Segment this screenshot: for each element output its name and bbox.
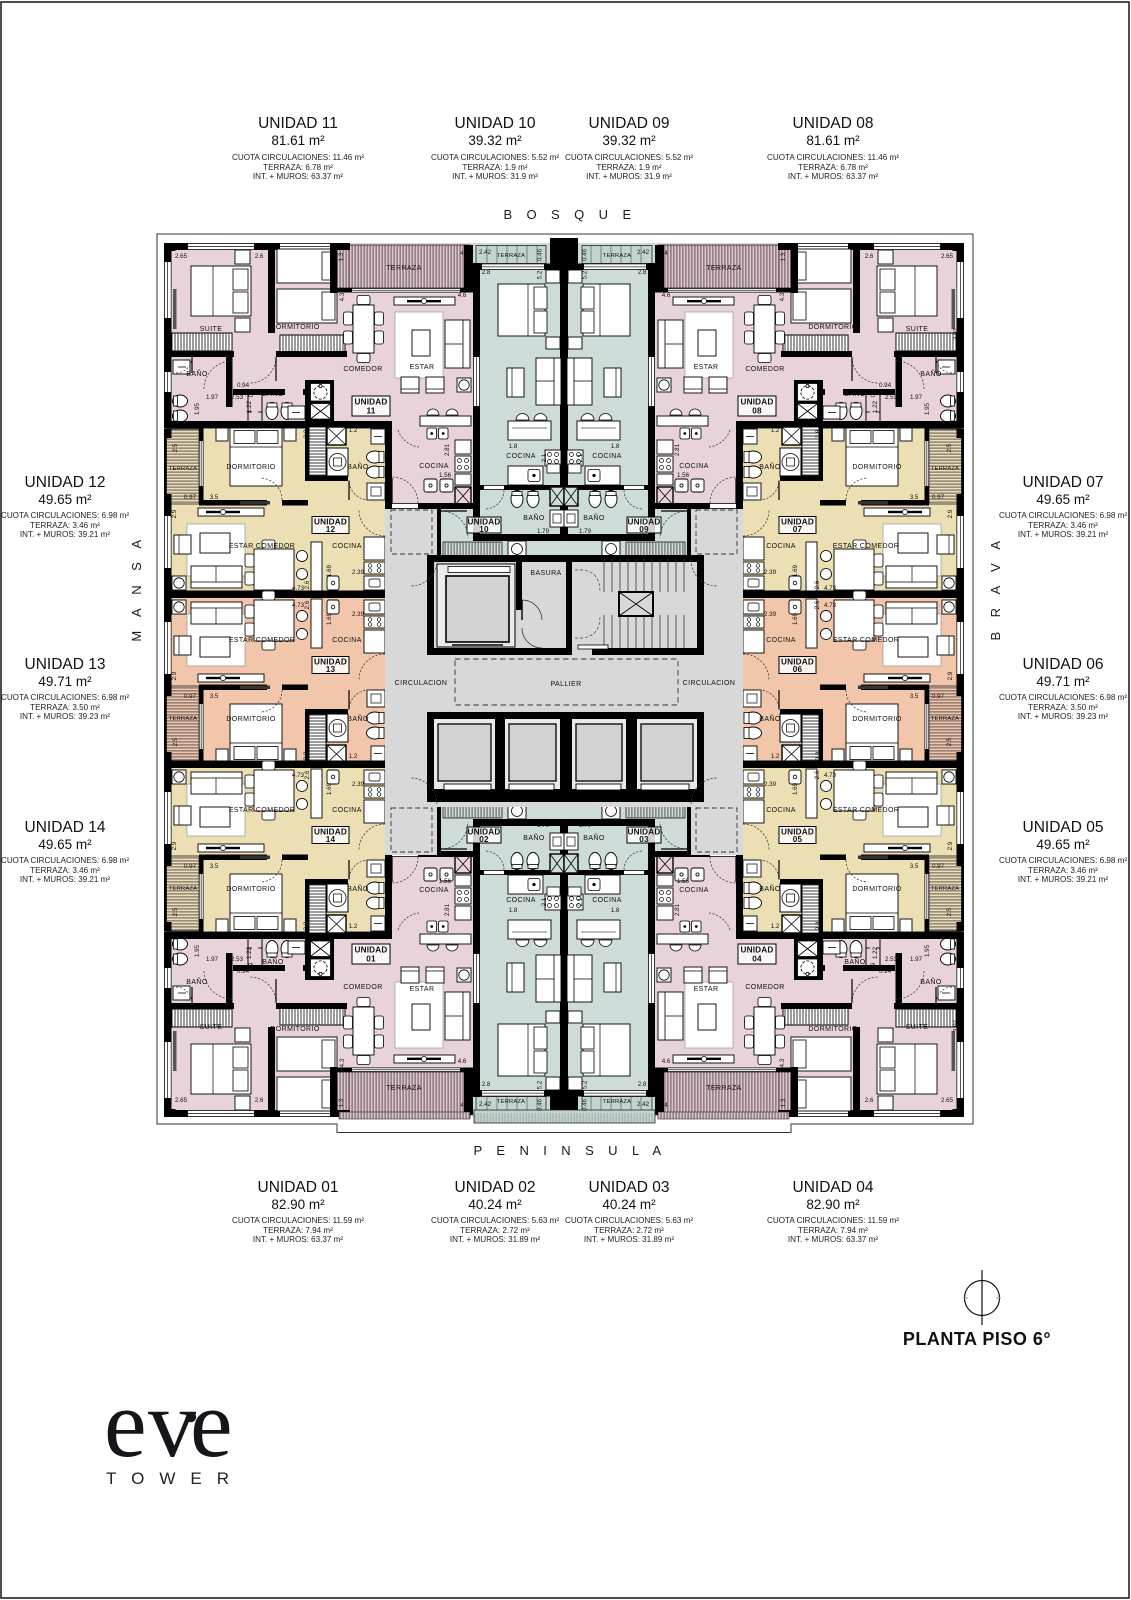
svg-text:1.97: 1.97 [206,394,219,401]
svg-text:2.39: 2.39 [352,781,365,788]
svg-text:07: 07 [793,525,803,534]
svg-text:2.6: 2.6 [865,1097,874,1104]
svg-text:INT. + MUROS: 31.9 m²: INT. + MUROS: 31.9 m² [452,172,538,181]
svg-text:COMEDOR: COMEDOR [343,366,382,373]
svg-text:1.3: 1.3 [780,252,787,261]
svg-text:TERRAZA: TERRAZA [497,253,525,259]
svg-text:5.2: 5.2 [582,1080,589,1089]
svg-text:COMEDOR: COMEDOR [343,984,382,991]
svg-text:13: 13 [326,665,336,674]
svg-text:3.07: 3.07 [166,327,173,340]
svg-text:DORMITORIO: DORMITORIO [226,886,276,893]
svg-text:BAÑO: BAÑO [920,369,942,378]
svg-text:UNIDAD 11: UNIDAD 11 [258,115,338,132]
svg-text:TERRAZA: TERRAZA [169,716,197,722]
svg-text:1.2: 1.2 [349,753,358,760]
svg-text:e: e [190,1370,231,1477]
svg-text:2.8: 2.8 [638,269,647,276]
svg-text:4.73: 4.73 [292,602,305,609]
svg-text:BAÑO: BAÑO [347,884,369,893]
svg-text:0.97: 0.97 [184,494,197,501]
svg-text:CUOTA CIRCULACIONES: 5.52 m²: CUOTA CIRCULACIONES: 5.52 m² [565,153,693,162]
svg-text:SUITE: SUITE [906,1024,929,1031]
svg-text:40.24 m²: 40.24 m² [468,1197,522,1212]
svg-text:COCINA: COCINA [592,453,622,460]
svg-text:2.5: 2.5 [172,907,179,916]
svg-text:82.90 m²: 82.90 m² [806,1197,860,1212]
svg-text:ESTAR: ESTAR [410,986,435,993]
svg-text:3.5: 3.5 [210,494,219,501]
svg-text:2.6: 2.6 [814,600,821,609]
svg-text:COMEDOR: COMEDOR [745,366,784,373]
svg-text:49.65 m²: 49.65 m² [38,492,92,507]
svg-text:BAÑO: BAÑO [583,833,605,842]
svg-text:3.07: 3.07 [953,327,960,340]
svg-text:1.22: 1.22 [246,946,253,959]
svg-text:TERRAZA: TERRAZA [931,716,959,722]
svg-text:BAÑO: BAÑO [920,977,942,986]
svg-text:COCINA: COCINA [592,897,622,904]
svg-text:TERRAZA: 3.50 m²: TERRAZA: 3.50 m² [1028,703,1098,712]
svg-text:2.8: 2.8 [638,1081,647,1088]
svg-text:1.8: 1.8 [509,907,518,914]
svg-text:1.56: 1.56 [439,472,452,479]
svg-text:COCINA: COCINA [679,463,709,470]
svg-text:2.81: 2.81 [444,903,451,916]
svg-text:ESTAR: ESTAR [694,986,719,993]
svg-text:DORMITORIO: DORMITORIO [226,716,276,723]
svg-text:TERRAZA: TERRAZA [386,1085,421,1092]
svg-text:TERRAZA: TERRAZA [603,253,631,259]
svg-text:1.95: 1.95 [194,944,201,957]
svg-text:2.42: 2.42 [479,249,492,256]
svg-text:DORMITORIO: DORMITORIO [808,1026,858,1033]
svg-text:0.9: 0.9 [870,962,877,971]
svg-text:2.42: 2.42 [637,1101,650,1108]
svg-text:TERRAZA: 7.94 m²: TERRAZA: 7.94 m² [263,1226,333,1235]
svg-text:2.8: 2.8 [482,1081,491,1088]
svg-text:39.32 m²: 39.32 m² [468,133,522,148]
svg-text:ESTAR: ESTAR [694,364,719,371]
svg-text:INT. + MUROS: 31.89 m²: INT. + MUROS: 31.89 m² [584,1235,674,1244]
svg-text:DORMITORIO: DORMITORIO [226,464,276,471]
svg-text:81.61 m²: 81.61 m² [271,133,325,148]
svg-text:TERRAZA: 6.78 m²: TERRAZA: 6.78 m² [263,163,333,172]
svg-text:SUITE: SUITE [200,1024,223,1031]
svg-text:CUOTA CIRCULACIONES: 6.98 m²: CUOTA CIRCULACIONES: 6.98 m² [999,856,1127,865]
svg-text:1.3: 1.3 [338,252,345,261]
svg-text:1.22: 1.22 [872,946,879,959]
svg-text:DORMITORIO: DORMITORIO [270,324,320,331]
svg-text:49.71 m²: 49.71 m² [38,674,92,689]
svg-text:2.65: 2.65 [941,1097,954,1104]
svg-text:TERRAZA: 3.46 m²: TERRAZA: 3.46 m² [1028,521,1098,530]
svg-text:TERRAZA: TERRAZA [603,1099,631,1105]
svg-text:1.2: 1.2 [349,427,358,434]
svg-text:1.56: 1.56 [439,878,452,885]
svg-text:e: e [104,1370,145,1477]
svg-text:PLANTA PISO 6°: PLANTA PISO 6° [903,1329,1051,1349]
svg-text:BAÑO: BAÑO [262,957,284,966]
svg-text:2.39: 2.39 [764,611,777,618]
svg-text:TERRAZA: TERRAZA [169,466,197,472]
svg-text:BAÑO: BAÑO [523,513,545,522]
svg-text:4.3: 4.3 [779,1058,786,1067]
svg-text:1.79: 1.79 [579,528,592,535]
svg-text:0.97: 0.97 [932,693,945,700]
svg-text:1.22: 1.22 [246,400,253,413]
svg-text:TERRAZA: 1.9 m²: TERRAZA: 1.9 m² [596,163,662,172]
svg-text:COCINA: COCINA [419,887,449,894]
svg-text:DORMITORIO: DORMITORIO [852,886,902,893]
svg-text:B R A V A: B R A V A [988,536,1003,641]
svg-text:2.42: 2.42 [637,249,650,256]
svg-text:INT. + MUROS: 39.23 m²: INT. + MUROS: 39.23 m² [20,712,110,721]
svg-text:05: 05 [793,835,803,844]
svg-text:2.8: 2.8 [815,429,822,438]
svg-text:CUOTA CIRCULACIONES: 6.98 m²: CUOTA CIRCULACIONES: 6.98 m² [1,511,129,520]
svg-text:2.9: 2.9 [947,841,954,850]
svg-text:4: 4 [460,250,464,257]
svg-text:39.32 m²: 39.32 m² [602,133,656,148]
svg-text:82.90 m²: 82.90 m² [271,1197,325,1212]
svg-text:CUOTA CIRCULACIONES: 6.98 m²: CUOTA CIRCULACIONES: 6.98 m² [999,511,1127,520]
svg-text:2.65: 2.65 [175,253,188,260]
svg-text:1.95: 1.95 [194,402,201,415]
svg-text:TERRAZA: TERRAZA [169,886,197,892]
svg-text:INT. + MUROS: 63.37 m²: INT. + MUROS: 63.37 m² [788,1235,878,1244]
svg-text:TERRAZA: 1.9 m²: TERRAZA: 1.9 m² [462,163,528,172]
svg-text:PALLIER: PALLIER [550,681,581,688]
svg-text:TERRAZA: TERRAZA [931,886,959,892]
svg-text:CUOTA CIRCULACIONES: 5.63 m²: CUOTA CIRCULACIONES: 5.63 m² [431,1216,559,1225]
svg-text:3.5: 3.5 [910,494,919,501]
svg-text:TOWER: TOWER [106,1469,244,1488]
svg-text:2.65: 2.65 [175,1097,188,1104]
svg-text:49.65 m²: 49.65 m² [38,837,92,852]
svg-text:B O S Q U E: B O S Q U E [503,207,636,222]
svg-text:49.65 m²: 49.65 m² [1036,837,1090,852]
svg-text:2.1: 2.1 [577,453,584,462]
svg-text:1.56: 1.56 [677,878,690,885]
svg-text:ESTAR COMEDOR: ESTAR COMEDOR [229,807,296,814]
svg-text:BAÑO: BAÑO [186,369,208,378]
svg-text:2.81: 2.81 [674,443,681,456]
svg-text:2.5: 2.5 [172,737,179,746]
svg-text:03: 03 [639,835,649,844]
svg-text:1.2: 1.2 [771,923,780,930]
svg-text:SUITE: SUITE [906,326,929,333]
svg-text:4.3: 4.3 [779,292,786,301]
svg-text:BAÑO: BAÑO [583,513,605,522]
svg-text:1.95: 1.95 [924,402,931,415]
svg-text:4.3: 4.3 [339,1058,346,1067]
svg-text:49.71 m²: 49.71 m² [1036,674,1090,689]
svg-text:0.94: 0.94 [237,382,250,389]
svg-text:1.8: 1.8 [509,443,518,450]
svg-text:ESTAR COMEDOR: ESTAR COMEDOR [833,807,900,814]
svg-text:1.8: 1.8 [611,907,620,914]
svg-text:02: 02 [479,835,489,844]
svg-text:1.2: 1.2 [771,753,780,760]
svg-text:2.6: 2.6 [304,770,311,779]
svg-text:BAÑO: BAÑO [759,462,781,471]
svg-text:BAÑO: BAÑO [759,884,781,893]
svg-text:UNIDAD 12: UNIDAD 12 [25,474,106,491]
svg-text:2.39: 2.39 [764,781,777,788]
svg-text:09: 09 [639,525,649,534]
svg-text:CIRCULACION: CIRCULACION [683,680,736,687]
svg-text:4.6: 4.6 [662,1058,671,1065]
svg-text:BAÑO: BAÑO [523,833,545,842]
svg-text:12: 12 [326,525,336,534]
svg-text:1.95: 1.95 [924,944,931,957]
svg-text:2.1: 2.1 [541,897,548,906]
svg-text:CUOTA CIRCULACIONES: 11.46 m²: CUOTA CIRCULACIONES: 11.46 m² [767,153,899,162]
svg-text:4: 4 [460,1102,464,1109]
svg-text:CUOTA CIRCULACIONES: 6.98 m²: CUOTA CIRCULACIONES: 6.98 m² [999,693,1127,702]
svg-text:2.6: 2.6 [304,580,311,589]
svg-text:INT. + MUROS: 63.37 m²: INT. + MUROS: 63.37 m² [253,172,343,181]
svg-text:08: 08 [752,407,762,416]
svg-text:2.8: 2.8 [303,751,310,760]
svg-text:COCINA: COCINA [766,807,796,814]
svg-text:BAÑO: BAÑO [759,714,781,723]
svg-text:5.2: 5.2 [582,270,589,279]
svg-text:UNIDAD 02: UNIDAD 02 [455,1179,536,1196]
svg-text:4.6: 4.6 [458,292,467,299]
svg-text:INT. + MUROS: 39.21 m²: INT. + MUROS: 39.21 m² [20,875,110,884]
svg-text:SUITE: SUITE [200,326,223,333]
svg-text:1.79: 1.79 [579,822,592,829]
svg-text:2.8: 2.8 [482,269,491,276]
svg-text:TERRAZA: 3.50 m²: TERRAZA: 3.50 m² [30,703,100,712]
svg-text:COCINA: COCINA [419,463,449,470]
svg-text:DORMITORIO: DORMITORIO [852,716,902,723]
svg-text:3.07: 3.07 [953,1019,960,1032]
svg-text:TERRAZA: TERRAZA [931,466,959,472]
svg-text:TERRAZA: 7.94 m²: TERRAZA: 7.94 m² [798,1226,868,1235]
svg-text:UNIDAD: UNIDAD [740,946,773,955]
svg-text:CUOTA CIRCULACIONES: 11.59 m²: CUOTA CIRCULACIONES: 11.59 m² [767,1216,899,1225]
svg-text:ESTAR COMEDOR: ESTAR COMEDOR [833,637,900,644]
svg-text:UNIDAD 06: UNIDAD 06 [1023,656,1104,673]
svg-text:1.2: 1.2 [349,923,358,930]
svg-text:0.94: 0.94 [879,968,892,975]
svg-text:2.6: 2.6 [865,253,874,260]
svg-text:1.97: 1.97 [206,956,219,963]
svg-text:INT. + MUROS: 63.37 m²: INT. + MUROS: 63.37 m² [788,172,878,181]
svg-text:2.9: 2.9 [947,671,954,680]
svg-text:2.5: 2.5 [946,737,953,746]
svg-text:0.97: 0.97 [184,863,197,870]
svg-text:CIRCULACION: CIRCULACION [395,680,448,687]
svg-text:1.3: 1.3 [338,1098,345,1107]
svg-text:BAÑO: BAÑO [844,389,866,398]
svg-text:INT. + MUROS: 39.21 m²: INT. + MUROS: 39.21 m² [20,530,110,539]
svg-text:1.97: 1.97 [910,394,923,401]
svg-text:TERRAZA: 2.72 m²: TERRAZA: 2.72 m² [594,1226,664,1235]
svg-text:BASURA: BASURA [530,570,561,577]
svg-text:BAÑO: BAÑO [347,462,369,471]
svg-text:INT. + MUROS: 39.21 m²: INT. + MUROS: 39.21 m² [1018,530,1108,539]
svg-text:0.9: 0.9 [248,962,255,971]
svg-text:COCINA: COCINA [506,453,536,460]
svg-text:BAÑO: BAÑO [262,389,284,398]
svg-text:2.81: 2.81 [444,443,451,456]
svg-text:0.46: 0.46 [582,248,589,261]
svg-text:2.39: 2.39 [352,569,365,576]
svg-text:COCINA: COCINA [332,807,362,814]
svg-text:BAÑO: BAÑO [186,977,208,986]
svg-text:0.46: 0.46 [582,1098,589,1111]
svg-text:UNIDAD 01: UNIDAD 01 [258,1179,339,1196]
svg-text:UNIDAD 04: UNIDAD 04 [793,1179,874,1196]
svg-text:INT. + MUROS: 31.9 m²: INT. + MUROS: 31.9 m² [586,172,672,181]
svg-text:UNIDAD 07: UNIDAD 07 [1023,474,1104,491]
svg-text:4.73: 4.73 [292,585,305,592]
svg-text:0.97: 0.97 [184,693,197,700]
svg-text:CUOTA CIRCULACIONES: 11.59 m²: CUOTA CIRCULACIONES: 11.59 m² [232,1216,364,1225]
svg-text:2.5: 2.5 [946,907,953,916]
svg-text:1.97: 1.97 [910,956,923,963]
svg-text:81.61 m²: 81.61 m² [806,133,860,148]
svg-text:M A N S A: M A N S A [129,534,144,641]
svg-text:4.73: 4.73 [292,772,305,779]
svg-text:1.3: 1.3 [780,1098,787,1107]
svg-text:2.6: 2.6 [814,580,821,589]
svg-text:1.69: 1.69 [792,612,799,625]
svg-text:COCINA: COCINA [766,543,796,550]
svg-text:2.5: 2.5 [172,443,179,452]
svg-text:2.6: 2.6 [255,1097,264,1104]
svg-text:0.9: 0.9 [248,388,255,397]
svg-text:2.9: 2.9 [171,841,178,850]
svg-text:COMEDOR: COMEDOR [745,984,784,991]
svg-text:3.5: 3.5 [210,863,219,870]
svg-text:2.6: 2.6 [304,600,311,609]
svg-text:06: 06 [793,665,803,674]
svg-text:BAÑO: BAÑO [844,957,866,966]
svg-text:2.6: 2.6 [255,253,264,260]
svg-text:1.2: 1.2 [771,427,780,434]
svg-text:0.94: 0.94 [879,382,892,389]
svg-text:UNIDAD: UNIDAD [354,398,387,407]
svg-text:1.69: 1.69 [326,564,333,577]
svg-text:TERRAZA: 2.72 m²: TERRAZA: 2.72 m² [460,1226,530,1235]
svg-text:BAÑO: BAÑO [347,714,369,723]
svg-text:UNIDAD: UNIDAD [740,398,773,407]
svg-text:2.53: 2.53 [231,956,244,963]
svg-text:4.73: 4.73 [824,585,837,592]
svg-text:2.53: 2.53 [885,956,898,963]
svg-text:0.9: 0.9 [870,388,877,397]
svg-text:UNIDAD 13: UNIDAD 13 [25,656,106,673]
svg-text:2.8: 2.8 [303,921,310,930]
svg-text:CUOTA CIRCULACIONES: 11.46 m²: CUOTA CIRCULACIONES: 11.46 m² [232,153,364,162]
svg-text:1.79: 1.79 [537,528,550,535]
svg-text:4.73: 4.73 [824,602,837,609]
svg-text:0.46: 0.46 [537,248,544,261]
svg-text:49.65 m²: 49.65 m² [1036,492,1090,507]
svg-text:INT. + MUROS: 39.23 m²: INT. + MUROS: 39.23 m² [1018,712,1108,721]
svg-text:2.53: 2.53 [231,394,244,401]
svg-text:UNIDAD 03: UNIDAD 03 [589,1179,670,1196]
svg-text:1.56: 1.56 [677,472,690,479]
svg-text:COCINA: COCINA [766,637,796,644]
svg-text:ESTAR COMEDOR: ESTAR COMEDOR [229,543,296,550]
svg-text:2.53: 2.53 [885,394,898,401]
svg-text:UNIDAD 09: UNIDAD 09 [589,115,670,132]
svg-text:2.9: 2.9 [171,671,178,680]
svg-text:2.1: 2.1 [541,453,548,462]
svg-text:1.69: 1.69 [326,612,333,625]
svg-text:4.6: 4.6 [458,1058,467,1065]
svg-text:TERRAZA: TERRAZA [706,265,741,272]
svg-text:1.8: 1.8 [611,443,620,450]
svg-text:2.8: 2.8 [303,429,310,438]
svg-text:1.69: 1.69 [792,564,799,577]
svg-text:TERRAZA: 3.46 m²: TERRAZA: 3.46 m² [1028,866,1098,875]
svg-text:UNIDAD: UNIDAD [354,946,387,955]
svg-text:4: 4 [664,1102,668,1109]
svg-text:5.2: 5.2 [537,270,544,279]
svg-text:2.81: 2.81 [674,903,681,916]
svg-text:2.39: 2.39 [764,569,777,576]
svg-text:40.24 m²: 40.24 m² [602,1197,656,1212]
svg-text:4.6: 4.6 [662,292,671,299]
svg-text:UNIDAD 08: UNIDAD 08 [793,115,874,132]
svg-text:ESTAR COMEDOR: ESTAR COMEDOR [833,543,900,550]
svg-text:2.42: 2.42 [479,1101,492,1108]
svg-text:COCINA: COCINA [332,637,362,644]
svg-text:1.22: 1.22 [872,400,879,413]
svg-text:CUOTA CIRCULACIONES: 6.98 m²: CUOTA CIRCULACIONES: 6.98 m² [1,856,129,865]
svg-text:INT. + MUROS: 63.37 m²: INT. + MUROS: 63.37 m² [253,1235,343,1244]
svg-text:INT. + MUROS: 31.89 m²: INT. + MUROS: 31.89 m² [450,1235,540,1244]
svg-text:CUOTA CIRCULACIONES: 6.98 m²: CUOTA CIRCULACIONES: 6.98 m² [1,693,129,702]
svg-text:2.8: 2.8 [815,751,822,760]
svg-text:INT. + MUROS: 39.21 m²: INT. + MUROS: 39.21 m² [1018,875,1108,884]
svg-text:TERRAZA: TERRAZA [386,265,421,272]
svg-text:14: 14 [326,835,336,844]
svg-text:0.46: 0.46 [537,1098,544,1111]
svg-text:11: 11 [366,407,375,416]
svg-text:4.3: 4.3 [339,292,346,301]
svg-text:TERRAZA: TERRAZA [497,1099,525,1105]
svg-text:1.69: 1.69 [792,782,799,795]
svg-text:COCINA: COCINA [332,543,362,550]
svg-text:v: v [148,1370,196,1477]
svg-text:DORMITORIO: DORMITORIO [852,464,902,471]
svg-text:ESTAR COMEDOR: ESTAR COMEDOR [229,637,296,644]
svg-text:UNIDAD 05: UNIDAD 05 [1023,819,1104,836]
svg-text:UNIDAD 14: UNIDAD 14 [25,819,106,836]
svg-text:TERRAZA: TERRAZA [706,1085,741,1092]
svg-text:0.97: 0.97 [932,863,945,870]
svg-text:2.9: 2.9 [171,509,178,518]
svg-text:2.9: 2.9 [947,509,954,518]
svg-text:P E N I N S U L A: P E N I N S U L A [474,1143,667,1158]
svg-text:3.5: 3.5 [210,693,219,700]
svg-text:DORMITORIO: DORMITORIO [808,324,858,331]
svg-text:DORMITORIO: DORMITORIO [270,1026,320,1033]
svg-text:2.5: 2.5 [946,443,953,452]
svg-text:CUOTA CIRCULACIONES: 5.63 m²: CUOTA CIRCULACIONES: 5.63 m² [565,1216,693,1225]
svg-text:2.65: 2.65 [941,253,954,260]
svg-text:2.39: 2.39 [352,611,365,618]
svg-text:0.97: 0.97 [932,494,945,501]
